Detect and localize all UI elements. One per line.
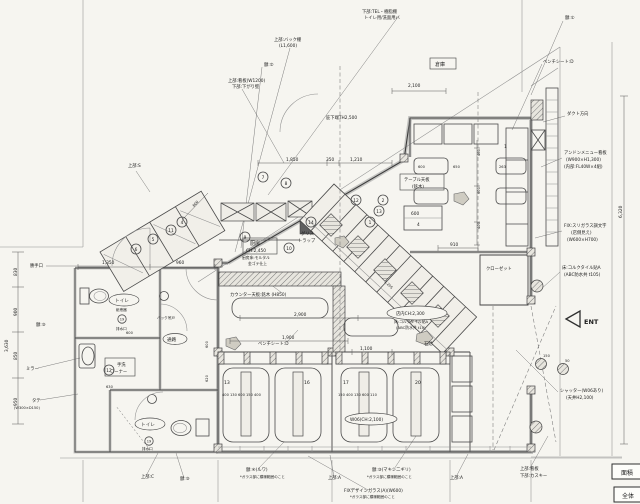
sign-note: アンドンメニュー看板 — [564, 149, 607, 156]
circled-tag: 4 — [181, 220, 184, 226]
drain-label: 排水口 — [142, 446, 153, 451]
floor-plan-canvas: 下部:TEL・樹脂棚 トイレ用/洗面用バ 上部:バック棚 (L1,600) 額:… — [0, 0, 640, 504]
kitchen-ch-label: CH:2,450 — [246, 248, 266, 254]
dim-label: 50 — [565, 359, 570, 363]
booth-number: 13 — [224, 380, 230, 386]
note-label: 上部:バック棚 — [274, 36, 301, 43]
glass-note: (店側見え) — [571, 229, 592, 236]
note-label: 上部:C — [141, 473, 154, 480]
frame-tag: 額:② — [264, 61, 274, 68]
wash-basin — [82, 347, 94, 365]
toilet-tank — [80, 288, 89, 304]
toilet-bowl — [90, 289, 109, 303]
dim-label: 600 — [418, 165, 426, 169]
dim-label: 600 — [477, 186, 481, 194]
booth-number: 17 — [343, 380, 349, 386]
frame-tag: 額:⑤ — [36, 321, 46, 328]
facade-sign-band — [546, 88, 558, 246]
bench-label: ベンチシート:D — [258, 341, 289, 347]
circled-tag: 12 — [353, 198, 359, 204]
frame-tag: 額:① — [565, 14, 575, 21]
glass-note: FIX:スリガラス調文字 — [564, 222, 606, 229]
note-label: 下部:カスキー — [520, 472, 547, 479]
eave-note: 庇下端TH2,500 — [326, 114, 357, 121]
note-label: *ガラス部に模様範囲のこと — [350, 494, 395, 499]
kitchen-floor-note: 厨房床:モルタル — [242, 255, 270, 260]
dim-label: 910 — [450, 242, 458, 248]
floor-note: 床:コルクタイル貼A — [562, 264, 601, 271]
back-door-label: 勝手口 — [30, 262, 43, 269]
vanity-counter — [79, 344, 95, 368]
dim-label: 3,630 — [4, 339, 10, 352]
circled-tag: 6 — [135, 247, 138, 253]
note-label: *ガラス部に模様範囲のこと — [367, 474, 412, 479]
dim-label: 620 — [205, 374, 209, 382]
corridor-label: 通路 — [167, 336, 177, 343]
note-label: *ガラス部に模様範囲のこと — [240, 474, 285, 479]
toilet-tank — [196, 419, 209, 436]
dim-label: 600 — [126, 331, 134, 335]
dim-label: 400 130 600 150 400 — [222, 393, 262, 397]
sign-note: (内部:FL40W×4組) — [564, 163, 603, 170]
dim-label: 1,850 — [286, 157, 299, 163]
circled-tag: 9 — [244, 235, 247, 241]
circled-tag: 10 — [286, 246, 292, 252]
circled-tag: 11 — [168, 228, 174, 234]
circled-tag: 14 — [308, 220, 314, 226]
counter-return — [333, 286, 345, 352]
dim-label: 150 — [543, 354, 551, 358]
sign-note: (W900×H1,300) — [566, 157, 601, 163]
booth-seating — [218, 352, 531, 452]
kitchen-label: 厨房 — [250, 240, 260, 247]
booth-number: 16 — [304, 380, 310, 386]
title-block-label: 面積 — [621, 469, 633, 477]
room-number: 1 — [504, 144, 507, 150]
dim-label: 900 — [13, 308, 19, 316]
dim-label: 263 — [499, 165, 506, 169]
table-capacity: 4 — [417, 222, 420, 228]
dim-label: 1,100 — [360, 346, 373, 352]
shutter-note: (天井H2,100) — [566, 394, 594, 401]
toilet-label: トイレ — [115, 299, 129, 304]
dim-label: 1,350 — [102, 260, 115, 266]
note-label: 下部:下がり壁 — [232, 83, 260, 90]
counter-bench — [232, 298, 328, 318]
circled-tag: 5 — [152, 237, 155, 243]
duct-label: ダクト方向 — [567, 110, 588, 117]
counter-note: カウンター天板:銘木 (H850) — [230, 291, 287, 298]
bench-label: ベンチシート:D — [543, 59, 574, 65]
floor-plan-page: 下部:TEL・樹脂棚 トイレ用/洗面用バ 上部:バック棚 (L1,600) 額:… — [0, 0, 640, 504]
dim-label: 2,100 — [408, 83, 421, 89]
dim-label: 150 400 130 600 110 — [338, 393, 378, 397]
hall-ch-label: 店内CH:2,300 — [396, 310, 425, 317]
dim-label: 2,900 — [294, 312, 307, 318]
floor-note: (ABC防水共 t105) — [564, 271, 601, 278]
circled-tag: 1 — [369, 220, 372, 226]
note-label: (L1,600) — [279, 43, 297, 49]
counter — [219, 272, 341, 286]
frame-tag: 額:③(マキシ二ギリ) — [372, 466, 411, 473]
title-block-label: 全体 — [622, 492, 634, 500]
dim-label: 350 — [326, 157, 334, 163]
circled-tag: 8 — [285, 181, 288, 187]
dim-label: 650 — [453, 165, 461, 169]
dim-label: 400 — [477, 221, 481, 229]
note-label: 上部:看板(W1200) — [228, 77, 265, 84]
dim-label: 830 — [13, 268, 19, 276]
dim-label: 950 — [13, 398, 19, 406]
circled-tag: 13 — [376, 209, 382, 215]
dim-label: 600 — [205, 340, 209, 348]
circled-tag: 7 — [262, 175, 265, 181]
closet-label: クローゼット — [486, 265, 512, 272]
shelf-label: タテ — [32, 397, 41, 404]
dim-label: 6,320 — [618, 205, 624, 218]
frame-tag: 額:⑤ — [180, 475, 190, 482]
frame-tag: 額:④(ルワ) — [246, 466, 268, 473]
note-label: 下部:TEL・樹脂棚 — [362, 8, 397, 15]
back-room-block — [100, 191, 225, 291]
mirror-label: ミラー — [26, 366, 39, 372]
stone-label: 石貼 — [424, 340, 433, 347]
grease-trap-label: グリス — [301, 230, 314, 237]
table-top-note: テーブル天板 — [404, 176, 430, 183]
grease-trap-label: トラップ — [298, 238, 316, 244]
dim-label: 460 — [477, 148, 481, 156]
sign-block — [531, 100, 543, 120]
wash-corner-label: コーナー — [110, 369, 127, 375]
storage-room-label: 倉庫 — [435, 61, 445, 68]
bench-seat — [344, 318, 398, 336]
floor-note: (ABC防水共 t10) — [396, 325, 426, 330]
floor-note: 床:コルクタイル貼A — [394, 319, 429, 324]
entrance-arrow-icon — [566, 311, 580, 327]
dim-label: 630 — [106, 385, 114, 389]
circled-tag: 2 — [382, 198, 385, 204]
glass-note: (W600×H700) — [567, 237, 598, 243]
door-note: バック吊戸 — [157, 315, 175, 320]
glass-note: FIXデザインガラス(A)(W600) — [344, 487, 403, 494]
title-blocks: 面積 全体 — [612, 464, 640, 502]
circled-tag: 19 — [120, 318, 125, 322]
shutter-note: シャッター(W06あり) — [560, 387, 603, 394]
circled-tag: 19 — [147, 440, 152, 444]
toilet-label: トイレ — [141, 423, 155, 428]
fixture-label: 紙巻器 — [116, 307, 127, 312]
note-label: 上部:S — [128, 162, 141, 169]
dim-label: 1,210 — [350, 157, 363, 163]
table-dim: 600 — [411, 211, 419, 217]
table-top-note: (銘木) — [412, 183, 424, 190]
circled-tag: 12 — [106, 368, 112, 374]
dim-label: 1,900 — [282, 335, 295, 341]
kitchen-floor-note: 金ゴテ仕上 — [248, 261, 267, 266]
note-label: 上部:A — [328, 474, 341, 481]
dim-label: 850 — [13, 352, 19, 360]
note-label: トイレ用/洗面用バ — [364, 14, 401, 21]
dim-label: 960 — [176, 260, 184, 266]
toilet-bowl — [171, 421, 191, 436]
entrance-label: ENT — [584, 318, 599, 326]
note-label: 上部:A — [450, 474, 463, 481]
note-label: 上部:看板 — [520, 465, 539, 472]
booth-number: 20 — [415, 380, 421, 386]
window-tag: W06(CH:2,100) — [350, 417, 383, 423]
wash-corner-label: 手洗 — [117, 361, 126, 368]
